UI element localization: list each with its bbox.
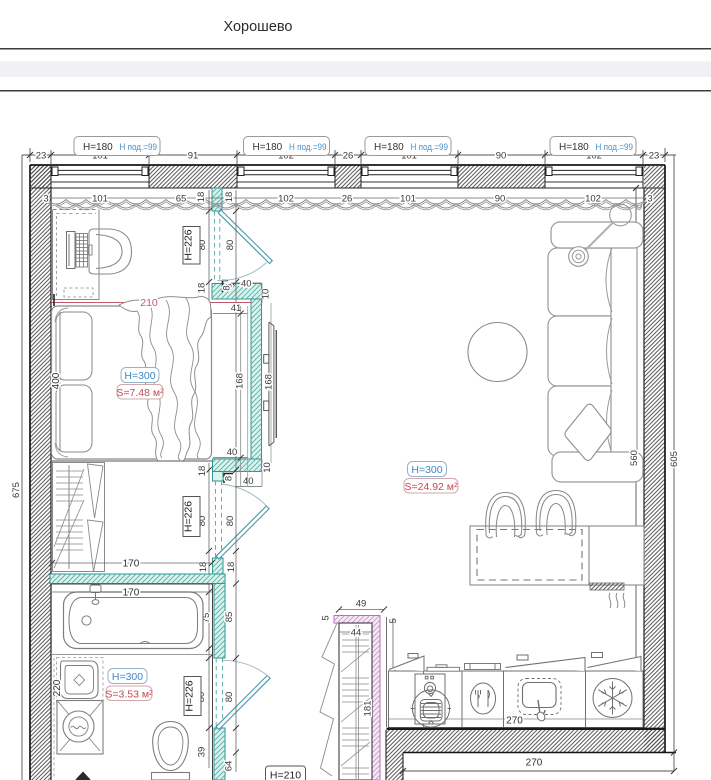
svg-text:H=226: H=226 bbox=[183, 229, 195, 260]
svg-text:Н под.=99: Н под.=99 bbox=[120, 142, 158, 152]
svg-text:101: 101 bbox=[92, 194, 108, 205]
svg-text:65: 65 bbox=[176, 194, 187, 205]
svg-text:18: 18 bbox=[197, 283, 208, 294]
svg-text:41: 41 bbox=[231, 303, 242, 314]
svg-text:3: 3 bbox=[43, 194, 48, 205]
svg-text:40: 40 bbox=[241, 279, 252, 290]
svg-text:101: 101 bbox=[400, 194, 416, 205]
svg-text:18: 18 bbox=[226, 562, 237, 573]
svg-text:80: 80 bbox=[225, 240, 236, 251]
svg-text:3: 3 bbox=[647, 194, 652, 205]
svg-text:H=180: H=180 bbox=[559, 142, 589, 153]
svg-text:H=226: H=226 bbox=[183, 501, 195, 532]
svg-text:102: 102 bbox=[585, 194, 601, 205]
svg-text:Н под.=99: Н под.=99 bbox=[596, 142, 634, 152]
svg-text:170: 170 bbox=[123, 588, 140, 599]
svg-text:H=226: H=226 bbox=[184, 680, 196, 711]
svg-text:26: 26 bbox=[343, 151, 354, 162]
svg-text:270: 270 bbox=[506, 716, 523, 727]
svg-text:S=24.92 м²: S=24.92 м² bbox=[404, 481, 458, 493]
svg-text:5: 5 bbox=[321, 615, 332, 620]
svg-text:102: 102 bbox=[278, 194, 294, 205]
svg-text:18: 18 bbox=[197, 466, 208, 477]
svg-text:8: 8 bbox=[224, 476, 235, 481]
svg-text:H=180: H=180 bbox=[83, 142, 113, 153]
svg-text:5: 5 bbox=[388, 618, 399, 623]
svg-text:39: 39 bbox=[197, 747, 208, 758]
svg-text:8: 8 bbox=[222, 285, 233, 290]
svg-text:80: 80 bbox=[225, 516, 236, 527]
svg-text:Н под.=99: Н под.=99 bbox=[411, 142, 449, 152]
svg-text:181: 181 bbox=[363, 701, 374, 717]
svg-text:49: 49 bbox=[356, 599, 367, 610]
svg-text:44: 44 bbox=[351, 628, 362, 639]
svg-text:85: 85 bbox=[224, 612, 235, 623]
svg-text:H=180: H=180 bbox=[253, 142, 283, 153]
svg-text:168: 168 bbox=[235, 373, 246, 389]
svg-text:270: 270 bbox=[526, 758, 543, 769]
svg-text:S=7.48 м²: S=7.48 м² bbox=[116, 387, 164, 399]
svg-text:90: 90 bbox=[496, 151, 507, 162]
svg-text:H=300: H=300 bbox=[124, 370, 155, 382]
svg-text:400: 400 bbox=[51, 372, 62, 389]
svg-text:675: 675 bbox=[11, 482, 22, 498]
svg-text:18: 18 bbox=[196, 192, 207, 203]
svg-text:H=210: H=210 bbox=[270, 770, 301, 780]
svg-text:26: 26 bbox=[342, 194, 353, 205]
svg-text:210: 210 bbox=[140, 297, 158, 309]
svg-text:90: 90 bbox=[495, 194, 506, 205]
svg-text:168: 168 bbox=[264, 374, 275, 390]
svg-text:40: 40 bbox=[227, 447, 238, 458]
svg-text:91: 91 bbox=[188, 151, 199, 162]
svg-text:18: 18 bbox=[224, 192, 235, 203]
svg-text:40: 40 bbox=[243, 476, 254, 487]
svg-text:Хорошево: Хорошево bbox=[223, 19, 292, 35]
svg-text:170: 170 bbox=[123, 559, 140, 570]
svg-text:23: 23 bbox=[649, 151, 660, 162]
svg-text:560: 560 bbox=[629, 450, 640, 466]
svg-text:80: 80 bbox=[224, 692, 235, 703]
svg-text:Н под.=99: Н под.=99 bbox=[289, 142, 327, 152]
svg-text:64: 64 bbox=[224, 761, 235, 772]
svg-text:H=300: H=300 bbox=[112, 671, 143, 683]
svg-text:H=180: H=180 bbox=[374, 142, 404, 153]
svg-text:10: 10 bbox=[262, 462, 273, 473]
svg-text:23: 23 bbox=[36, 151, 47, 162]
svg-text:H=300: H=300 bbox=[411, 464, 442, 476]
svg-text:605: 605 bbox=[669, 451, 680, 467]
svg-text:S=3.53 м²: S=3.53 м² bbox=[105, 689, 153, 701]
